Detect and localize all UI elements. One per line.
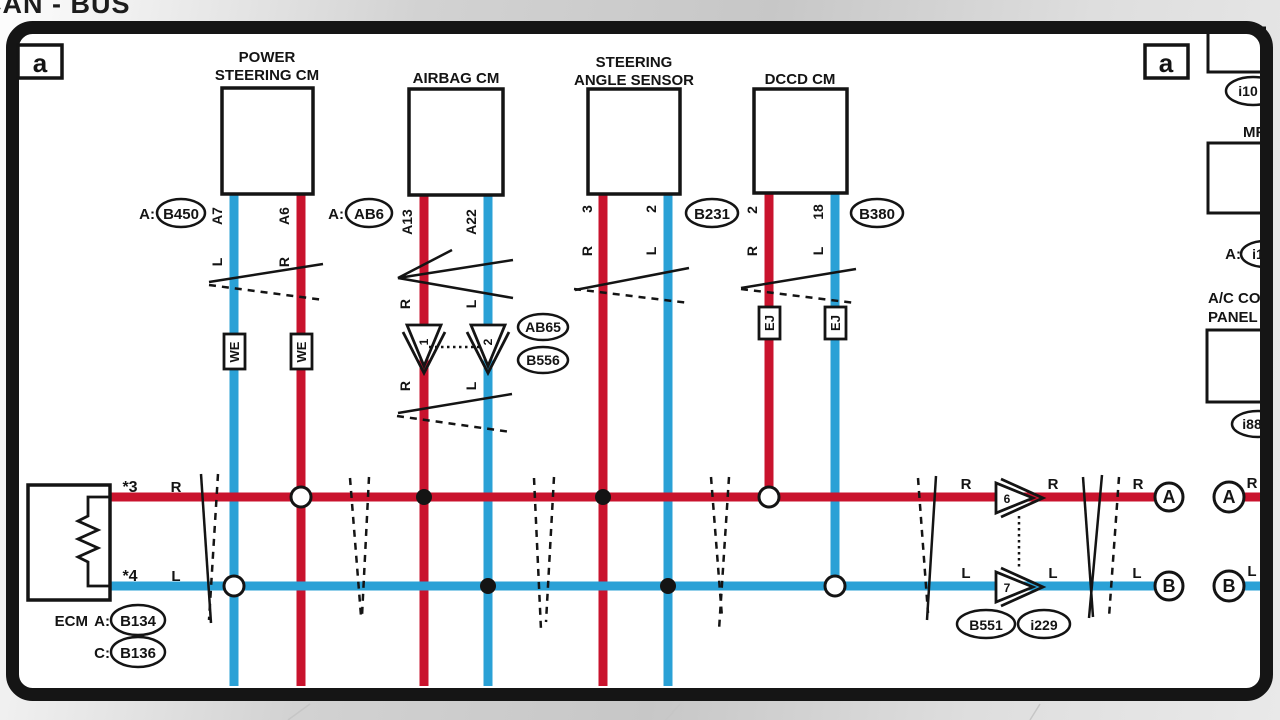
ab-wire-l2: L (463, 381, 479, 390)
splice-we-1-label: WE (227, 341, 242, 362)
dccd-title: DCCD CM (765, 71, 836, 88)
airbag-title: AIRBAG CM (413, 70, 500, 87)
dccd-wire-r: R (744, 246, 760, 256)
bus-low-label-2: L (1048, 565, 1057, 582)
inline-connector-6-number: 6 (1004, 492, 1011, 506)
terminal-a-letter: A (1163, 487, 1176, 507)
ref-marker-left-letter: a (33, 48, 48, 78)
inline-connector-7-number: 7 (1004, 581, 1011, 595)
power-steering-title-1: POWER (239, 49, 296, 66)
bus-high-label-4: R (1247, 475, 1258, 492)
ps-pin-a7: A7 (209, 207, 225, 225)
power-steering-cm-box (222, 88, 313, 194)
can-bus-diagram: i10 MFD A: i1 A/C CONT PANEL i88 (0, 0, 1280, 720)
ref-marker-right-letter: a (1159, 48, 1174, 78)
bus-high-label-3: R (1133, 476, 1144, 493)
continuation-a-letter: A (1223, 487, 1236, 507)
ab-wire-l: L (463, 299, 479, 308)
ac-panel-label-2: PANEL (1208, 309, 1258, 326)
bus-low-label-3: L (1132, 565, 1141, 582)
steering-angle-sensor-box (588, 89, 680, 194)
junction-power-steering-high (291, 487, 311, 507)
connector-b556-label: B556 (526, 352, 560, 368)
connector-b231-label: B231 (694, 206, 730, 223)
sas-pin-2: 2 (643, 205, 659, 213)
ps-pin-a6: A6 (276, 207, 292, 225)
dccd-pin-18: 18 (810, 204, 826, 220)
connector-ab65-label: AB65 (525, 319, 561, 335)
sas-wire-r: R (579, 246, 595, 256)
connector-i88-label: i88 (1242, 416, 1262, 432)
terminal-b-letter: B (1163, 576, 1176, 596)
inline-connector-1-number: 1 (417, 338, 431, 345)
power-steering-title-2: STEERING CM (215, 67, 319, 84)
ab-wire-r2: R (397, 381, 413, 391)
ab-pin-a22: A22 (463, 209, 479, 235)
airbag-cm-box (409, 89, 503, 195)
junction-steering-angle-high (595, 489, 611, 505)
mfd-conn-prefix: A: (1225, 246, 1241, 263)
junction-power-steering-low (224, 576, 244, 596)
junction-airbag-low (480, 578, 496, 594)
ps-wire-l: L (209, 257, 225, 266)
ecm-conn-c-prefix: C: (94, 645, 110, 662)
ecm-pin-3-label: *3 (122, 479, 137, 496)
junction-dccd-high (759, 487, 779, 507)
junction-dccd-low (825, 576, 845, 596)
ps-wire-r: R (276, 257, 292, 267)
wiring-diagram-page: CAN - BUS i10 MFD A: i1 A/C CONT PANEL (0, 0, 1280, 720)
steering-angle-title-2: ANGLE SENSOR (574, 72, 694, 89)
ecm-pin-4-label: *4 (122, 568, 137, 585)
steering-angle-title-1: STEERING (596, 54, 673, 71)
junction-steering-angle-low (660, 578, 676, 594)
connector-b134-label: B134 (120, 613, 157, 630)
ecm-label: ECM (55, 613, 88, 630)
connector-i229-label: i229 (1030, 617, 1057, 633)
ecm-conn-a-prefix: A: (94, 613, 110, 630)
connector-b380-label: B380 (859, 206, 895, 223)
connector-ab6-label: AB6 (354, 206, 384, 223)
connector-b450-label: B450 (163, 206, 199, 223)
sas-wire-l: L (643, 246, 659, 255)
connector-b551-label: B551 (969, 617, 1003, 633)
dccd-pin-2: 2 (744, 206, 760, 214)
bus-low-label-4: L (1247, 563, 1256, 580)
connector-i10-label: i10 (1238, 83, 1258, 99)
ab-conn-prefix: A: (328, 206, 344, 223)
ab-pin-a13: A13 (399, 209, 415, 235)
bus-low-label-left: L (171, 568, 180, 585)
bus-high-label-2: R (1048, 476, 1059, 493)
background-floor-seams (288, 704, 1040, 720)
connector-b136-label: B136 (120, 645, 156, 662)
splice-we-2-label: WE (294, 341, 309, 362)
inline-connector-2-number: 2 (481, 338, 495, 345)
junction-airbag-high (416, 489, 432, 505)
bus-high-label-1: R (961, 476, 972, 493)
continuation-b-letter: B (1223, 576, 1236, 596)
ab-wire-r: R (397, 299, 413, 309)
dccd-wire-l: L (810, 246, 826, 255)
sas-pin-3: 3 (579, 205, 595, 213)
dccd-cm-box (754, 89, 847, 193)
ecm-box (28, 485, 110, 600)
splice-ej-2-label: EJ (828, 315, 843, 331)
ps-conn-prefix: A: (139, 206, 155, 223)
bus-high-label-left: R (171, 479, 182, 496)
bus-low-label-1: L (961, 565, 970, 582)
splice-ej-1-label: EJ (762, 315, 777, 331)
